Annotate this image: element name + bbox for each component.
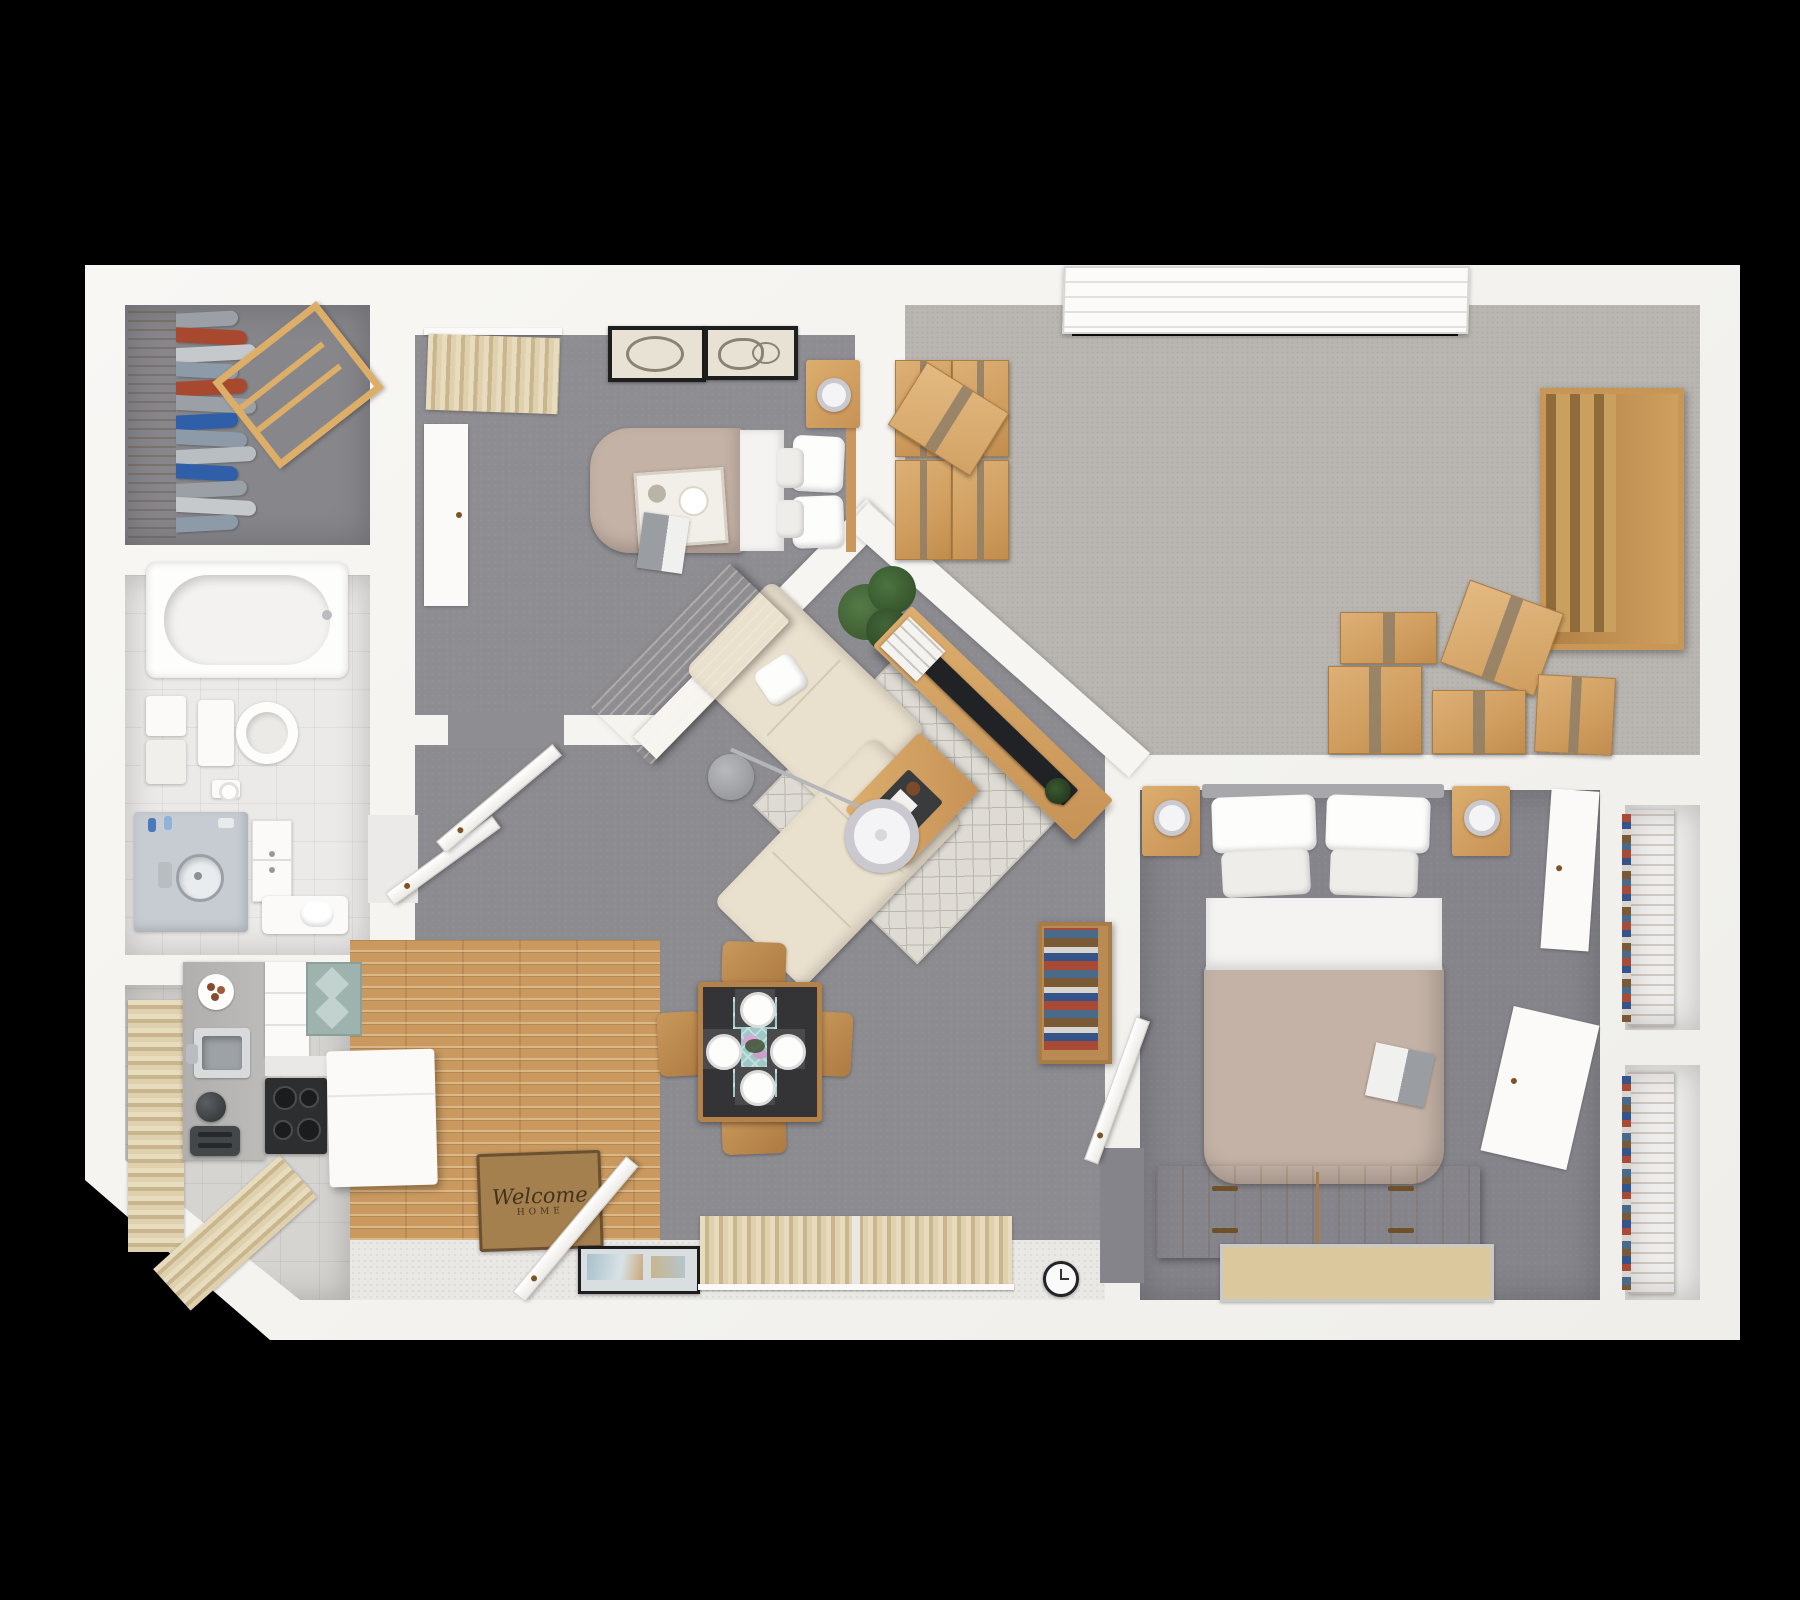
tray-plate (678, 485, 710, 517)
master-sheet (1206, 898, 1442, 970)
island-seam (327, 1093, 435, 1098)
wall-clock (1043, 1261, 1079, 1297)
burner (297, 1118, 321, 1142)
tray-cup (647, 484, 666, 503)
wall-art (608, 326, 706, 382)
plate (770, 1034, 806, 1070)
kitchen-rug (306, 962, 362, 1036)
kettle (196, 1092, 226, 1122)
garment (176, 480, 247, 499)
bed-pillow-small (776, 448, 804, 488)
bedroom-master-doorway (1100, 1148, 1144, 1283)
kitchen-sink (194, 1028, 250, 1078)
dresser-handle (1388, 1228, 1414, 1233)
garment (176, 429, 247, 448)
wall-art (704, 326, 798, 380)
wardrobe (424, 424, 468, 606)
bathtub-basin (164, 575, 330, 665)
floor-plan-scene: Welcome HOME (0, 0, 1800, 1600)
toilet-bowl (236, 702, 298, 764)
food (211, 993, 219, 1001)
bedroom-window-curtain (426, 334, 561, 415)
cabinet-seam (265, 1024, 309, 1026)
nightstand-lamp (817, 378, 851, 412)
soap-dish (218, 818, 234, 828)
small-bed-frame-edge (846, 428, 856, 552)
toaster-slot (198, 1132, 232, 1137)
bathtub (146, 562, 348, 678)
nightstand-lamp (1464, 800, 1500, 836)
dresser-handle (1212, 1228, 1238, 1233)
moving-box (1328, 666, 1422, 754)
plate (740, 1070, 776, 1106)
toilet-tank (198, 700, 234, 766)
wardrobe-knob (456, 512, 462, 518)
bed-pillow (1211, 794, 1317, 854)
faucet (158, 862, 172, 888)
cabinet-knob (269, 867, 275, 873)
bench-towel-roll (300, 901, 334, 927)
clothes-rack (128, 308, 176, 538)
bookcase (1038, 922, 1112, 1064)
kitchen-window-curtain (128, 1000, 184, 1252)
burner (273, 1120, 293, 1140)
lamp-center (875, 829, 887, 841)
drying-rack-bar (239, 342, 325, 411)
box-tape (1568, 677, 1582, 753)
dresser-seam (1316, 1172, 1319, 1252)
bed-pillow-small (1221, 848, 1311, 899)
vanity-counter (134, 812, 248, 932)
bedroom-small-doorway (448, 712, 564, 748)
toothbrush (148, 818, 156, 832)
box-tape (1482, 596, 1523, 681)
centerpiece-leaves (745, 1039, 765, 1053)
garment (176, 497, 256, 516)
closet-shelf (1628, 1072, 1674, 1294)
entry-window-curtains (700, 1216, 1012, 1288)
box-tape (1473, 691, 1485, 753)
dining-chair (721, 941, 786, 987)
console-plant (1045, 778, 1071, 804)
bed-pillow-small (1329, 848, 1419, 897)
wood-mat (1220, 1244, 1494, 1302)
towel (146, 696, 186, 736)
box-tape (920, 461, 927, 559)
nightstand-lamp (1154, 800, 1190, 836)
closet-books (1622, 1076, 1631, 1290)
garage-door (1062, 266, 1470, 334)
hanging-clothes (176, 312, 256, 538)
sink-basin (202, 1036, 242, 1070)
burner (273, 1086, 297, 1110)
bathtub-faucet (322, 610, 332, 620)
toaster-slot (198, 1143, 232, 1148)
shelf-slats (1546, 394, 1616, 632)
dining-table (698, 982, 822, 1122)
moving-box (952, 460, 1009, 560)
box-tape (925, 385, 974, 453)
arc-lamp-base (708, 754, 754, 800)
cabinet-knob (269, 851, 275, 857)
moving-box (1432, 690, 1526, 754)
doormat-text-welcome: Welcome (492, 1183, 588, 1208)
box-tape (1383, 613, 1395, 663)
plate (706, 1034, 742, 1070)
toaster (190, 1126, 240, 1156)
moving-box (1534, 674, 1616, 756)
moving-box (1340, 612, 1437, 664)
food (207, 983, 215, 991)
doormat-text-home: HOME (517, 1206, 564, 1218)
kitchen-island (326, 1049, 438, 1188)
art-scribble (752, 342, 780, 364)
closet-books (1622, 814, 1631, 1022)
curtain-rod (698, 1284, 1014, 1290)
garment (176, 310, 238, 328)
door-knob (530, 1274, 538, 1282)
picture-frame (578, 1246, 700, 1294)
toilet-seat (246, 712, 288, 754)
burner (299, 1088, 319, 1108)
food-plate (198, 974, 234, 1010)
door-knob (1096, 1132, 1104, 1140)
toothbrush (164, 816, 172, 830)
books (1044, 928, 1098, 1050)
towel (146, 740, 186, 784)
bed-pillow-small (776, 500, 804, 538)
storage-wall-shelf (1540, 388, 1684, 650)
bathroom-cabinet (252, 820, 292, 902)
dresser-handle (1212, 1186, 1238, 1191)
box-tape (1369, 667, 1381, 753)
clock-hand (1061, 1278, 1069, 1280)
box-tape (977, 461, 984, 559)
kitchen-counter (183, 962, 265, 1160)
garment (176, 514, 238, 532)
doormat: Welcome HOME (476, 1150, 603, 1252)
picture-art (651, 1256, 685, 1278)
counter-gap (265, 1056, 327, 1076)
toilet-paper-roll (219, 782, 239, 802)
sink-drain (194, 872, 202, 880)
faucet (186, 1044, 198, 1064)
door-knob (403, 882, 411, 890)
toilet-paper-holder (212, 780, 240, 798)
dresser-handle (1388, 1186, 1414, 1191)
cabinet-seam (265, 992, 309, 994)
bed-pillow (1325, 794, 1431, 854)
picture-art (587, 1254, 643, 1280)
garment (176, 412, 238, 430)
cushion-seam (772, 851, 852, 928)
kitchen-cabinets (265, 962, 309, 1056)
door-knob (1556, 865, 1562, 871)
door-knob (1510, 1077, 1517, 1084)
food (217, 986, 225, 994)
door-knob (456, 826, 464, 834)
plate (740, 992, 776, 1028)
garment (176, 446, 256, 465)
stove (265, 1078, 327, 1154)
rug-diamond (315, 995, 349, 1029)
closet-shelf (1628, 810, 1674, 1026)
garment (176, 327, 247, 346)
moving-box (895, 460, 952, 560)
dining-chair (656, 1011, 703, 1077)
curtain-gap (852, 1216, 860, 1288)
garment (176, 463, 238, 481)
art-scribble (626, 336, 684, 372)
arc-lamp-shade (845, 799, 919, 873)
drying-rack-bar (256, 364, 342, 433)
cabinet-seam (253, 859, 291, 861)
bathroom-bench (262, 896, 348, 934)
book-on-bed (636, 512, 689, 574)
